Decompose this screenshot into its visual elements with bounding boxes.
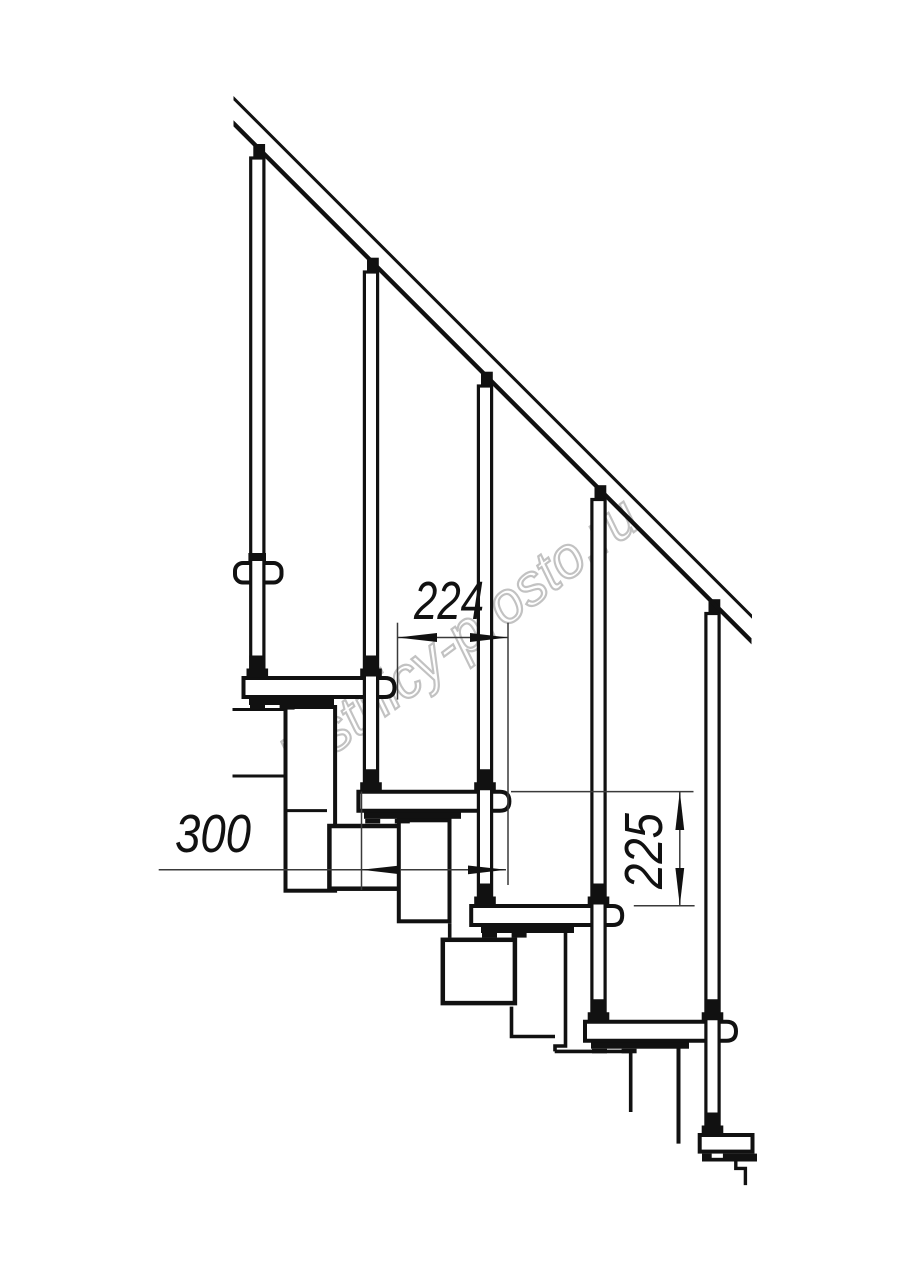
svg-text:300: 300 [175, 804, 251, 864]
svg-text:224: 224 [413, 571, 484, 631]
svg-text:225: 225 [614, 812, 674, 890]
